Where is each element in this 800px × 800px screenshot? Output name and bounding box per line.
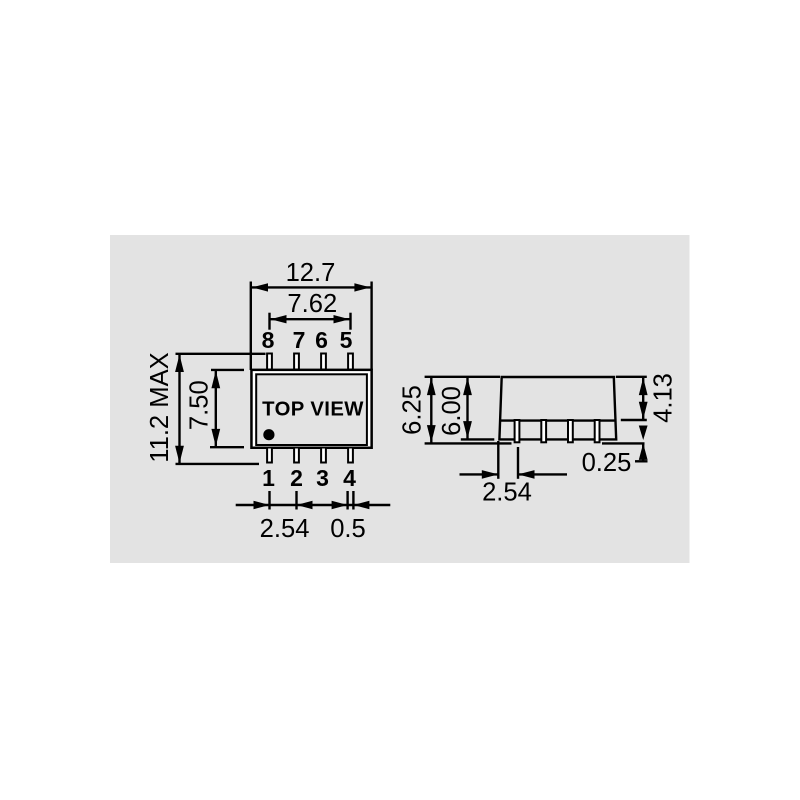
svg-text:6: 6 bbox=[315, 327, 328, 353]
svg-text:0.5: 0.5 bbox=[330, 515, 366, 543]
svg-text:6.00: 6.00 bbox=[438, 386, 466, 436]
svg-text:7.50: 7.50 bbox=[186, 380, 214, 430]
svg-text:2.54: 2.54 bbox=[482, 478, 532, 506]
svg-text:6.25: 6.25 bbox=[399, 385, 427, 435]
svg-text:TOP VIEW: TOP VIEW bbox=[262, 398, 364, 420]
svg-text:2.54: 2.54 bbox=[260, 515, 310, 543]
svg-text:1: 1 bbox=[262, 465, 275, 491]
svg-text:5: 5 bbox=[340, 327, 353, 353]
svg-text:0.25: 0.25 bbox=[582, 449, 632, 477]
svg-text:8: 8 bbox=[262, 327, 275, 353]
svg-text:4.13: 4.13 bbox=[649, 373, 677, 423]
svg-text:2: 2 bbox=[290, 465, 303, 491]
svg-text:11.2 MAX: 11.2 MAX bbox=[146, 352, 174, 463]
svg-text:12.7: 12.7 bbox=[286, 259, 336, 287]
svg-text:7.62: 7.62 bbox=[287, 290, 337, 318]
svg-text:4: 4 bbox=[343, 465, 356, 491]
svg-text:3: 3 bbox=[316, 465, 329, 491]
svg-text:7: 7 bbox=[293, 327, 306, 353]
